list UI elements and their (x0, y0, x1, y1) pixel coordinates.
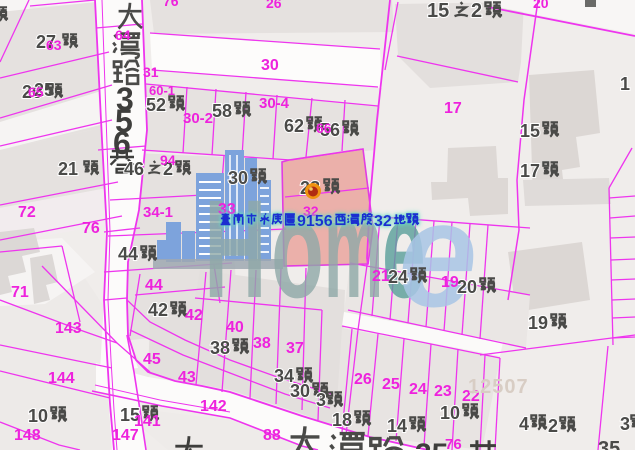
svg-text:24: 24 (388, 267, 408, 287)
svg-text:H: H (204, 171, 267, 327)
svg-text:e: e (398, 172, 477, 339)
svg-text:58: 58 (212, 101, 232, 121)
svg-text:143: 143 (55, 320, 82, 337)
svg-text:88: 88 (263, 427, 281, 444)
svg-text:71: 71 (11, 284, 29, 301)
svg-text:141: 141 (134, 413, 161, 430)
svg-text:m: m (324, 172, 383, 328)
svg-text:144: 144 (48, 370, 75, 387)
svg-text:42: 42 (185, 307, 203, 324)
svg-text:32: 32 (374, 213, 392, 230)
svg-text:24: 24 (409, 381, 427, 398)
svg-text:45: 45 (143, 351, 161, 368)
svg-text:23: 23 (434, 383, 452, 400)
svg-text:35: 35 (415, 438, 448, 450)
svg-text:14: 14 (387, 416, 407, 436)
svg-text:10: 10 (440, 403, 460, 423)
svg-text:6: 6 (113, 125, 131, 161)
svg-text:12507: 12507 (468, 376, 529, 398)
svg-text:19: 19 (441, 274, 459, 291)
svg-text:148: 148 (14, 427, 41, 444)
svg-text:15: 15 (427, 0, 449, 22)
svg-text:76: 76 (163, 0, 179, 9)
svg-text:18: 18 (332, 410, 352, 430)
svg-text:4: 4 (519, 414, 529, 434)
svg-text:30: 30 (228, 168, 248, 188)
svg-text:30-2: 30-2 (183, 110, 213, 127)
svg-text:63: 63 (46, 37, 62, 53)
svg-text:30-4: 30-4 (259, 95, 290, 112)
svg-text:30: 30 (290, 381, 310, 401)
svg-text:44: 44 (145, 277, 163, 294)
svg-text:17: 17 (520, 161, 540, 181)
svg-text:62: 62 (284, 116, 304, 136)
svg-text:76: 76 (445, 436, 462, 450)
svg-text:1: 1 (620, 74, 630, 94)
svg-text:94: 94 (160, 152, 176, 168)
svg-text:66: 66 (316, 120, 332, 136)
svg-text:26: 26 (354, 371, 372, 388)
svg-text:17: 17 (444, 100, 462, 117)
svg-text:2: 2 (548, 416, 558, 436)
svg-text:76: 76 (82, 220, 100, 237)
svg-text:37: 37 (286, 340, 304, 357)
svg-text:35: 35 (598, 438, 620, 450)
svg-text:42: 42 (148, 300, 168, 320)
svg-text:10: 10 (28, 406, 48, 426)
svg-text:3: 3 (620, 414, 630, 434)
svg-text:25: 25 (382, 376, 400, 393)
svg-text:15: 15 (520, 121, 540, 141)
svg-text:46: 46 (124, 159, 144, 179)
svg-text:44: 44 (118, 244, 138, 264)
svg-text:30: 30 (261, 57, 279, 74)
svg-text:52: 52 (146, 95, 166, 115)
svg-text:38: 38 (210, 338, 230, 358)
svg-text:64: 64 (115, 27, 131, 43)
svg-text:9156: 9156 (297, 213, 333, 230)
svg-text:38: 38 (253, 335, 271, 352)
svg-text:72: 72 (18, 204, 36, 221)
svg-text:20: 20 (457, 277, 477, 297)
svg-text:34-1: 34-1 (143, 204, 173, 221)
svg-text:26: 26 (266, 0, 282, 11)
svg-text:43: 43 (178, 369, 196, 386)
svg-text:21: 21 (372, 268, 390, 285)
svg-text:3: 3 (316, 390, 326, 410)
svg-text:21: 21 (58, 159, 78, 179)
svg-text:20: 20 (533, 0, 549, 11)
svg-text:65: 65 (28, 84, 44, 100)
svg-text:40: 40 (226, 319, 244, 336)
svg-text:2: 2 (471, 0, 482, 22)
svg-text:142: 142 (200, 398, 227, 415)
svg-text:19: 19 (528, 313, 548, 333)
svg-text:31: 31 (143, 64, 159, 80)
svg-text:60-1: 60-1 (149, 83, 175, 98)
